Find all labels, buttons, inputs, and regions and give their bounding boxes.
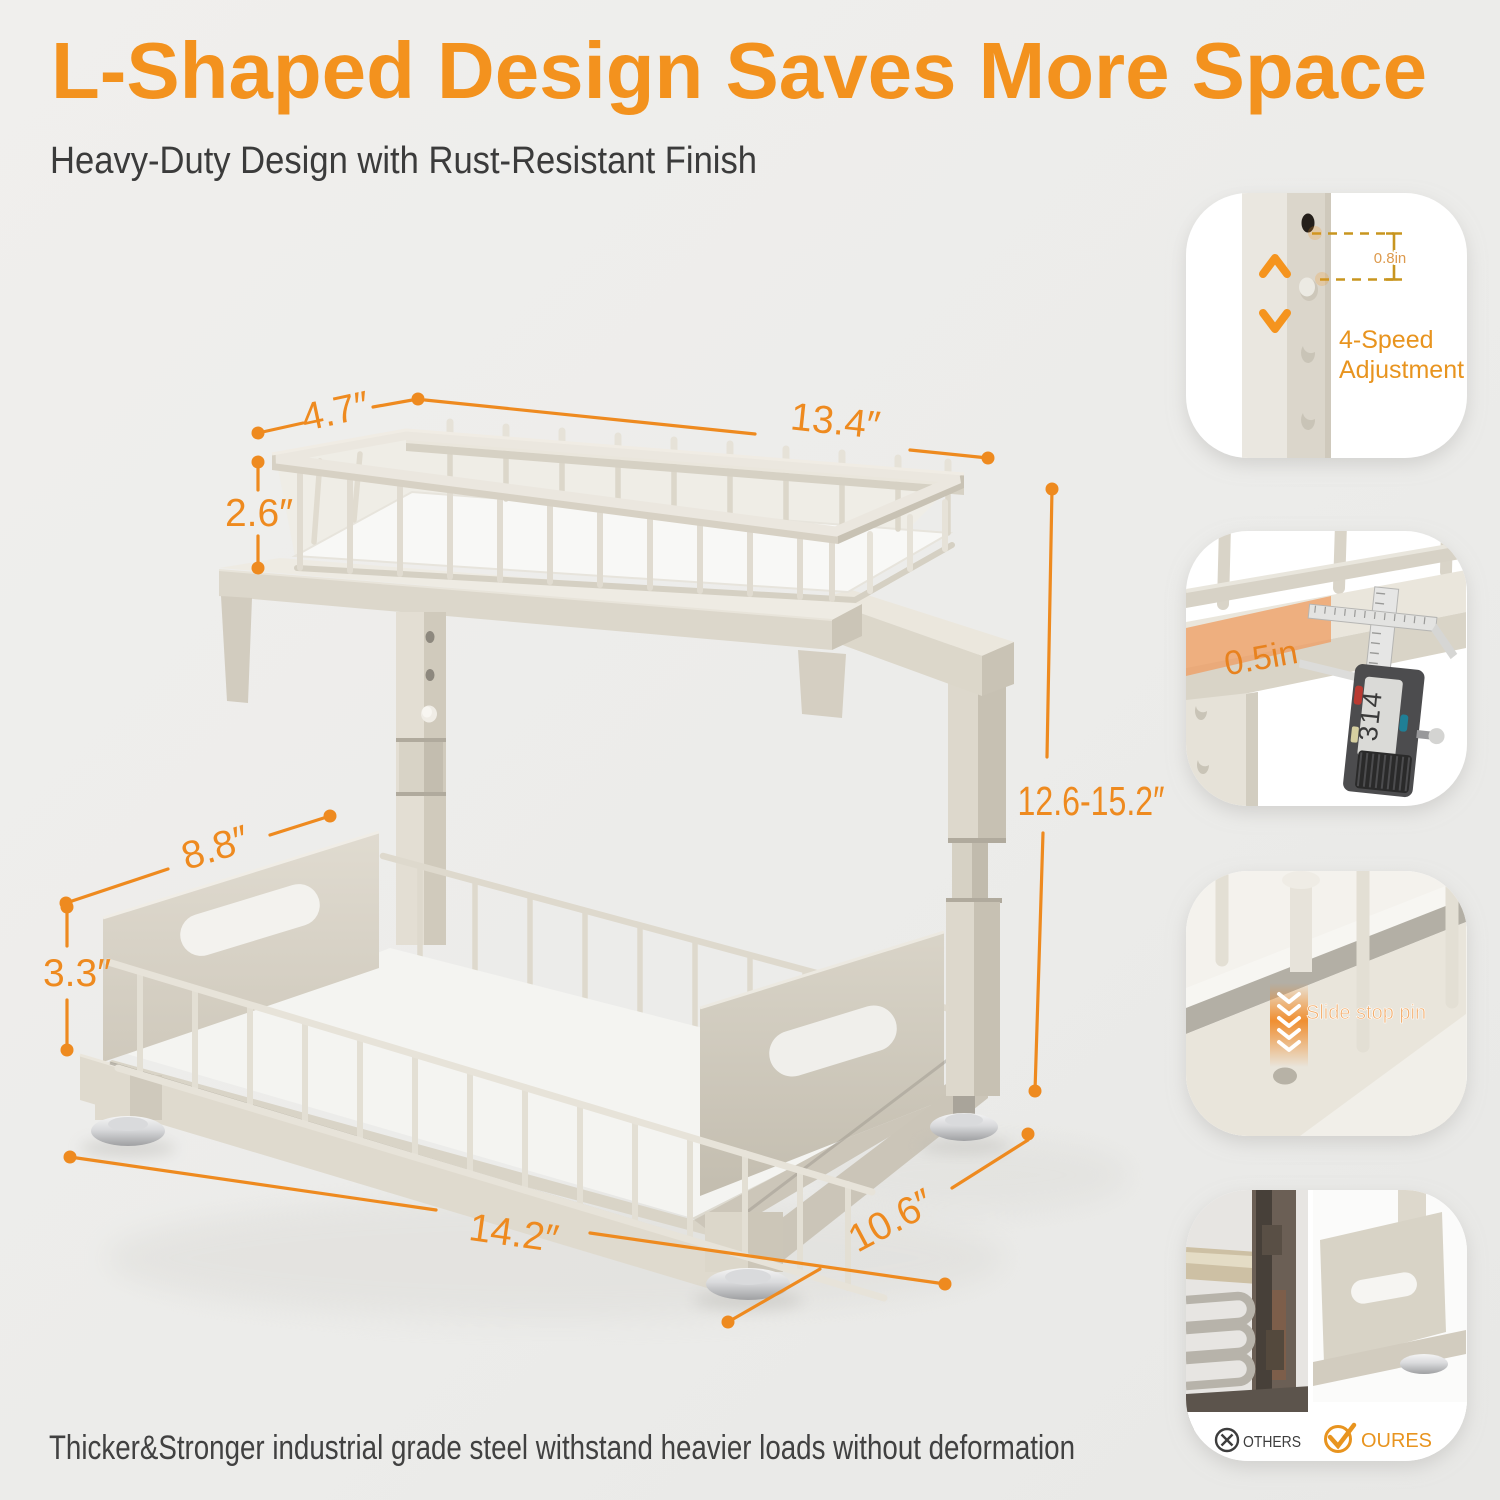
svg-text:OURES: OURES <box>1361 1430 1432 1452</box>
svg-text:Heavy-Duty Design with Rust-Re: Heavy-Duty Design with Rust-Resistant Fi… <box>50 140 757 182</box>
svg-text:Thicker&Stronger industrial gr: Thicker&Stronger industrial grade steel … <box>49 1429 1075 1467</box>
svg-text:3.3″: 3.3″ <box>43 952 111 995</box>
svg-text:4-Speed: 4-Speed <box>1339 326 1434 354</box>
svg-text:2.6″: 2.6″ <box>225 492 293 535</box>
svg-text:12.6-15.2″: 12.6-15.2″ <box>1018 778 1165 824</box>
svg-text:314: 314 <box>1353 689 1388 743</box>
svg-text:Adjustment: Adjustment <box>1339 356 1464 384</box>
svg-text:L-Shaped Design Saves More Spa: L-Shaped Design Saves More Space <box>51 26 1427 115</box>
svg-text:0.8in: 0.8in <box>1374 250 1407 267</box>
svg-text:OTHERS: OTHERS <box>1243 1434 1301 1451</box>
svg-text:Slide stop pin: Slide stop pin <box>1306 1002 1426 1024</box>
